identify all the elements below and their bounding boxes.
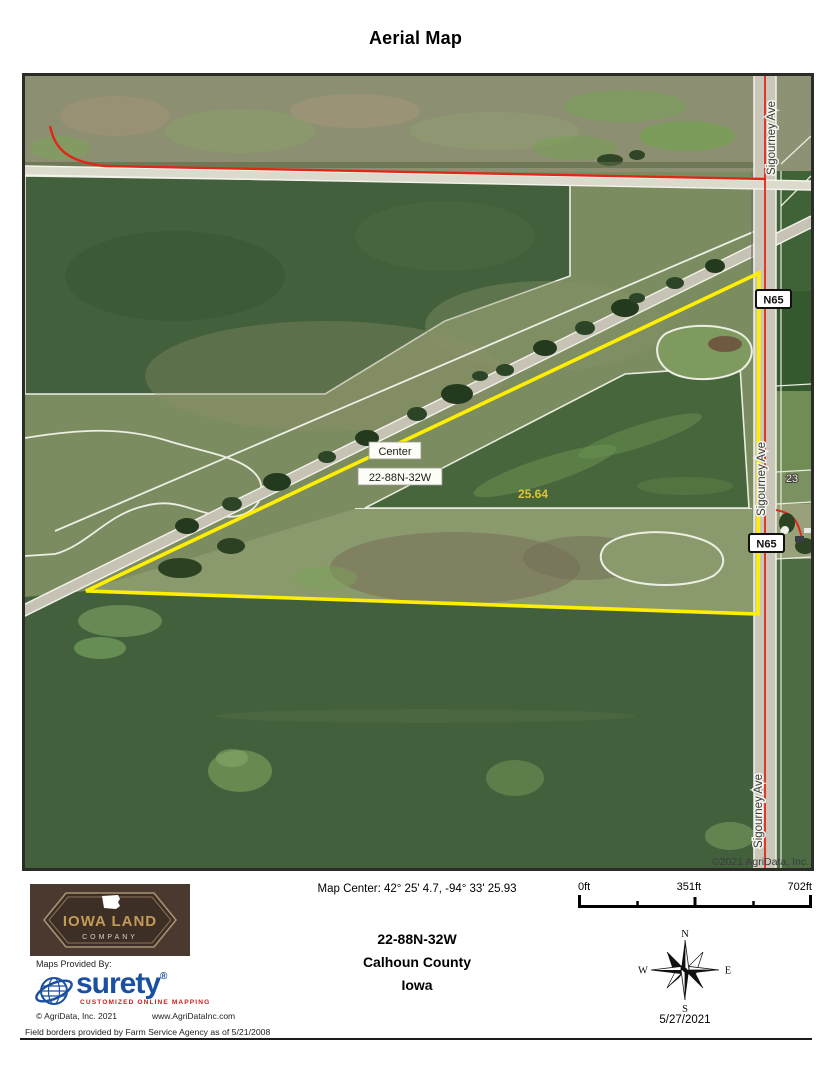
location-block: 22-88N-32W Calhoun County Iowa [317,928,517,997]
location-township: 22-88N-32W [317,928,517,951]
n65-badge-top-text: N65 [763,295,783,307]
pasture-strip [25,76,811,172]
n65-badge-top: N65 [756,290,791,308]
sigourney-ave-label-mid: Sigourney Ave [756,442,768,516]
agridata-copyright: © AgriData, Inc. 2021 [36,1011,117,1021]
page-title: Aerial Map [0,28,831,49]
scale-bar-ruler [578,894,812,908]
bottom-field [25,591,756,868]
iowa-land-company-logo: IOWA LAND COMPANY [30,884,190,956]
map-copyright: ©2021 AgriData, Inc. [712,856,809,868]
compass-west-label: W [638,966,648,977]
aerial-map: Center 22-88N-32W 25.64 N65 N65 23 Sigou… [22,73,814,871]
surety-tagline: CUSTOMIZED ONLINE MAPPING [80,999,210,1006]
footer-divider [20,1038,812,1040]
oval-field-blob [657,326,752,379]
township-marker-label: 22-88N-32W [358,468,442,485]
n65-badge-lower: N65 [749,534,784,552]
surety-wordmark: surety® [76,967,166,1001]
scale-label-middle: 351ft [677,881,701,893]
sigourney-ave-label-bottom: Sigourney Ave [753,774,765,848]
iowa-state-icon [102,895,120,909]
location-state: Iowa [317,974,517,997]
field-borders-note: Field borders provided by Farm Service A… [25,1027,270,1037]
compass-rose-art: N S W E [635,928,735,1014]
compass-east-label: E [725,966,731,977]
surety-name: surety [76,967,160,1000]
iowa-logo-line1: IOWA LAND [63,913,157,930]
iowa-logo-line2: COMPANY [82,934,138,941]
agridata-url: www.AgriDataInc.com [152,1011,235,1021]
parcel-number-label: 23 [786,473,798,485]
east-fields [776,76,811,868]
sigourney-ave-label-top: Sigourney Ave [766,101,778,175]
surety-globe-icon [34,971,74,1011]
compass-rose: N S W E [635,928,735,1014]
scale-bar: 0ft 351ft 702ft [578,881,812,913]
surety-registered-mark: ® [160,971,166,982]
agridata-credit-line: © AgriData, Inc. 2021 www.AgriDataInc.co… [36,1011,296,1021]
compass-south-label: S [682,1004,688,1014]
map-center-coordinates: Map Center: 42° 25' 4.7, -94° 33' 25.93 [267,883,567,895]
iowa-land-logo-art: IOWA LAND COMPANY [30,884,190,956]
map-date: 5/27/2021 [635,1014,735,1026]
compass-north-label: N [681,929,689,940]
scale-label-start: 0ft [578,881,590,893]
scale-label-end: 702ft [788,881,812,893]
aerial-map-image: Center 22-88N-32W 25.64 N65 N65 23 Sigou… [25,76,811,868]
n65-badge-lower-text: N65 [756,539,776,551]
center-marker-text: Center [378,446,411,458]
township-marker-text: 22-88N-32W [369,472,432,484]
center-marker-label: Center [369,442,421,459]
location-county: Calhoun County [317,951,517,974]
compass-star [651,940,719,1000]
surety-logo: surety® CUSTOMIZED ONLINE MAPPING [34,971,244,1011]
acreage-label: 25.64 [518,487,548,501]
